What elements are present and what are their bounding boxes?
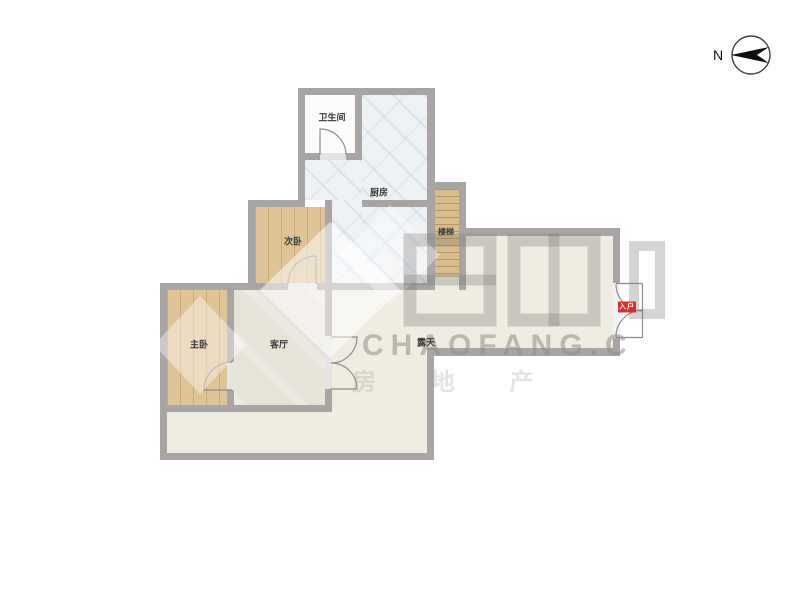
floor-stairs-landing (435, 277, 459, 290)
wall (459, 228, 620, 236)
room-label-master-bedroom: 主卧 (190, 338, 208, 351)
wall (613, 228, 620, 283)
room-label-stairs: 楼梯 (438, 227, 454, 238)
wall (459, 182, 466, 290)
door-opening-second-bedroom (288, 283, 317, 290)
wall-kitchen-inner (362, 200, 427, 207)
room-label-second-bedroom: 次卧 (284, 235, 302, 248)
wall-bathroom-divider (355, 95, 362, 160)
floor-kitchen-hall (332, 200, 362, 283)
wall-bedrooms-bottom (167, 405, 332, 412)
watermark-latin-text: CHAOFANG.C (362, 329, 634, 363)
wall (298, 88, 305, 207)
compass (731, 36, 770, 74)
room-label-terrace: 露天 (417, 336, 435, 349)
wall (248, 200, 255, 290)
door-opening-bathroom (320, 153, 346, 160)
wall (325, 290, 332, 336)
wall-bathroom-bottom (346, 153, 362, 160)
door-opening-living-room (325, 336, 332, 389)
compass-circle (732, 36, 770, 74)
wall (248, 200, 305, 207)
wall (317, 283, 427, 290)
wall (325, 200, 332, 290)
compass-north-label: N (713, 47, 723, 63)
wall (160, 283, 167, 460)
wall (298, 88, 435, 95)
wall (427, 88, 435, 290)
floor-bathroom (305, 95, 355, 153)
door-opening-master-bedroom (227, 362, 234, 390)
room-label-kitchen: 厨房 (370, 186, 388, 199)
room-label-living-room: 客厅 (270, 338, 288, 351)
wall-bedroom-divider (227, 290, 234, 362)
entrance-door-tag: 入户 (618, 302, 636, 313)
watermark-cjk-text: 房 地 产 (352, 362, 557, 397)
wall (325, 389, 332, 405)
wall-bathroom-bottom (305, 153, 320, 160)
floor-kitchen (305, 160, 362, 200)
floorplan-canvas: CHAOFANG.C 房 地 产 卫生间 厨房 次卧 楼梯 主卧 客厅 露天 入… (0, 0, 800, 600)
compass-arrow-icon (731, 47, 769, 63)
room-label-bathroom: 卫生间 (318, 111, 345, 124)
wall (160, 453, 434, 460)
wall (160, 283, 288, 290)
